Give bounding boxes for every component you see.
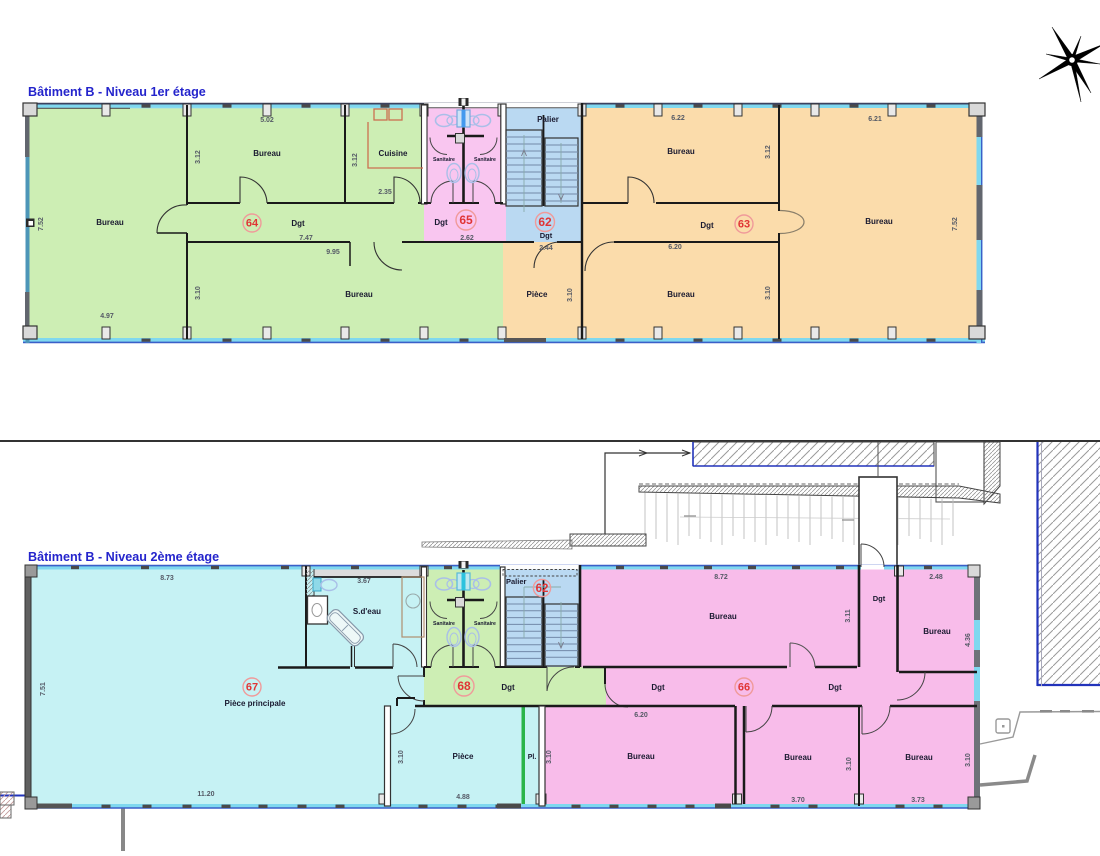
svg-text:7.52: 7.52 xyxy=(952,217,959,231)
svg-text:3.10: 3.10 xyxy=(765,286,772,300)
svg-text:Cuisine: Cuisine xyxy=(379,149,408,158)
svg-text:Bureau: Bureau xyxy=(709,612,737,621)
svg-text:Bureau: Bureau xyxy=(667,147,695,156)
svg-text:68: 68 xyxy=(457,679,471,693)
svg-text:Dgt: Dgt xyxy=(434,218,448,227)
svg-text:3.12: 3.12 xyxy=(352,153,359,167)
svg-text:Bureau: Bureau xyxy=(627,752,655,761)
svg-text:Bureau: Bureau xyxy=(96,218,124,227)
svg-text:Pl.: Pl. xyxy=(528,754,537,761)
svg-text:4.88: 4.88 xyxy=(456,794,470,801)
svg-text:6.20: 6.20 xyxy=(634,712,648,719)
svg-text:Sanitaire: Sanitaire xyxy=(474,621,496,627)
svg-text:3.10: 3.10 xyxy=(965,753,972,767)
svg-text:4.36: 4.36 xyxy=(965,633,972,647)
svg-text:Bureau: Bureau xyxy=(905,753,933,762)
svg-text:Dgt: Dgt xyxy=(291,219,305,228)
svg-text:2.44: 2.44 xyxy=(539,245,553,252)
svg-text:11.20: 11.20 xyxy=(197,791,214,798)
svg-text:Sanitaire: Sanitaire xyxy=(433,157,455,163)
svg-text:7.52: 7.52 xyxy=(38,217,45,231)
svg-text:7.47: 7.47 xyxy=(299,235,313,242)
svg-text:3.67: 3.67 xyxy=(357,578,371,585)
svg-text:3.10: 3.10 xyxy=(567,288,574,302)
svg-text:3.10: 3.10 xyxy=(398,750,405,764)
svg-text:Dgt: Dgt xyxy=(700,221,714,230)
svg-text:Pièce: Pièce xyxy=(527,290,548,299)
svg-text:8.73: 8.73 xyxy=(160,575,174,582)
svg-text:5.02: 5.02 xyxy=(260,117,274,124)
svg-text:Bâtiment B - Niveau 1er étage: Bâtiment B - Niveau 1er étage xyxy=(28,85,206,99)
svg-text:3.10: 3.10 xyxy=(846,757,853,771)
svg-text:66: 66 xyxy=(738,682,750,694)
svg-text:64: 64 xyxy=(246,218,259,230)
svg-text:Bureau: Bureau xyxy=(784,753,812,762)
svg-text:Palier: Palier xyxy=(506,577,527,586)
svg-text:Bureau: Bureau xyxy=(345,290,373,299)
svg-text:62: 62 xyxy=(538,215,552,229)
svg-text:7.51: 7.51 xyxy=(40,682,47,696)
svg-text:Bureau: Bureau xyxy=(253,149,281,158)
svg-text:Dgt: Dgt xyxy=(651,683,665,692)
svg-text:67: 67 xyxy=(246,682,258,694)
svg-text:2.62: 2.62 xyxy=(460,235,474,242)
svg-text:Dgt: Dgt xyxy=(873,594,886,603)
svg-text:2.48: 2.48 xyxy=(929,574,943,581)
svg-text:3.73: 3.73 xyxy=(911,797,925,804)
svg-text:3.12: 3.12 xyxy=(765,145,772,159)
svg-text:62: 62 xyxy=(536,583,549,595)
svg-text:Bâtiment B - Niveau 2ème étage: Bâtiment B - Niveau 2ème étage xyxy=(28,550,219,564)
svg-text:4.97: 4.97 xyxy=(100,313,114,320)
svg-text:Sanitaire: Sanitaire xyxy=(474,157,496,163)
svg-text:Palier: Palier xyxy=(537,115,559,124)
svg-text:Bureau: Bureau xyxy=(923,627,951,636)
svg-text:3.12: 3.12 xyxy=(195,150,202,164)
svg-text:Sanitaire: Sanitaire xyxy=(433,621,455,627)
svg-text:Bureau: Bureau xyxy=(667,290,695,299)
svg-text:3.11: 3.11 xyxy=(845,609,852,622)
svg-text:Dgt: Dgt xyxy=(501,683,515,692)
svg-text:Pièce principale: Pièce principale xyxy=(225,699,286,708)
svg-text:Dgt: Dgt xyxy=(540,231,553,240)
svg-text:3.70: 3.70 xyxy=(791,797,805,804)
svg-text:9.95: 9.95 xyxy=(326,249,340,256)
svg-text:63: 63 xyxy=(738,219,750,231)
svg-text:6.22: 6.22 xyxy=(671,115,685,122)
svg-text:2.35: 2.35 xyxy=(378,189,392,196)
svg-text:S.d'eau: S.d'eau xyxy=(353,607,381,616)
svg-text:3.10: 3.10 xyxy=(195,286,202,300)
svg-text:65: 65 xyxy=(459,213,473,227)
svg-text:Dgt: Dgt xyxy=(828,683,842,692)
svg-text:Pièce: Pièce xyxy=(453,752,474,761)
svg-text:8.72: 8.72 xyxy=(714,574,728,581)
svg-text:3.10: 3.10 xyxy=(546,750,553,764)
svg-text:6.21: 6.21 xyxy=(868,116,882,123)
svg-text:Bureau: Bureau xyxy=(865,217,893,226)
svg-text:6.20: 6.20 xyxy=(668,244,682,251)
